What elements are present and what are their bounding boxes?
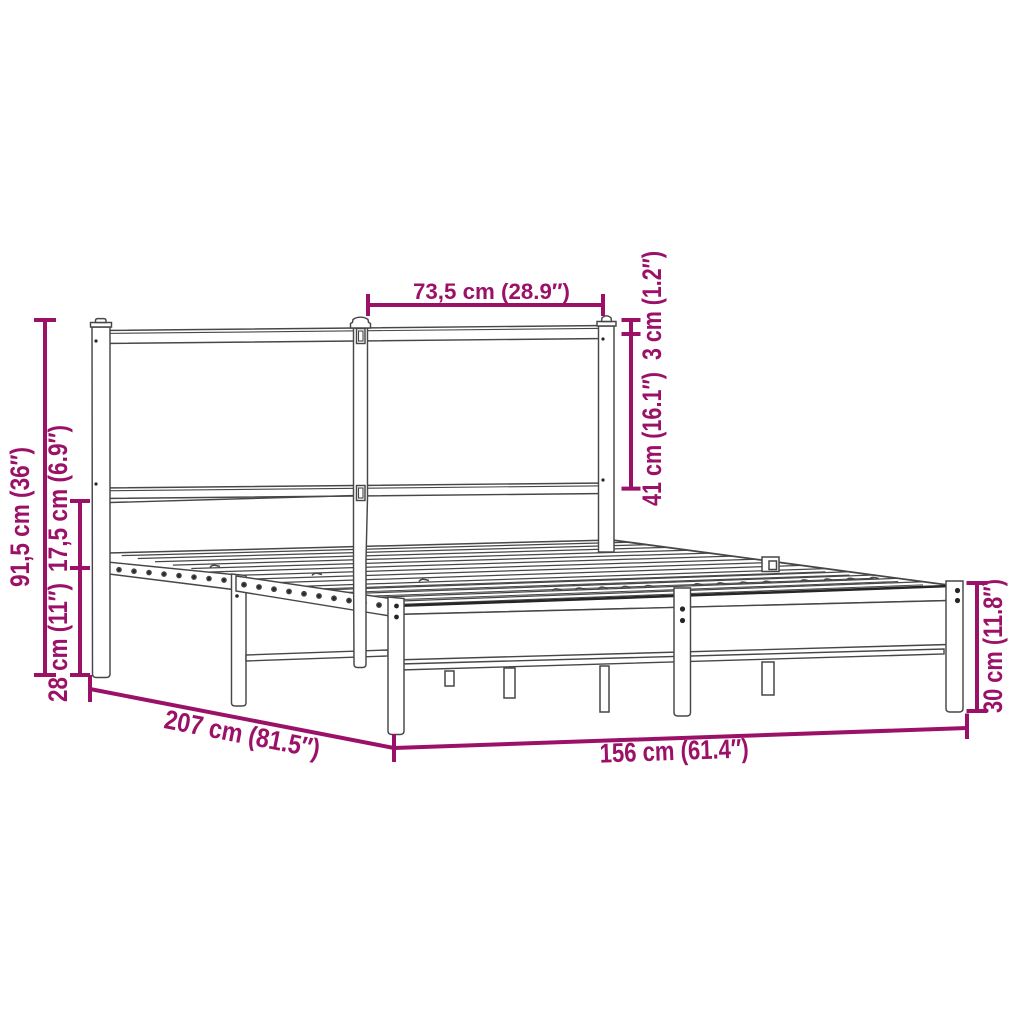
svg-text:156 cm (61.4″): 156 cm (61.4″): [599, 733, 749, 768]
svg-text:17,5 cm (6.9″): 17,5 cm (6.9″): [43, 425, 73, 572]
svg-text:73,5 cm (28.9″): 73,5 cm (28.9″): [413, 279, 570, 304]
svg-text:91,5 cm (36″): 91,5 cm (36″): [5, 447, 35, 587]
svg-text:41 cm (16.1″): 41 cm (16.1″): [637, 372, 667, 506]
svg-text:30 cm (11.8″): 30 cm (11.8″): [978, 579, 1008, 713]
svg-text:3 cm (1.2″): 3 cm (1.2″): [637, 251, 667, 360]
svg-text:28 cm (11″): 28 cm (11″): [43, 583, 73, 702]
